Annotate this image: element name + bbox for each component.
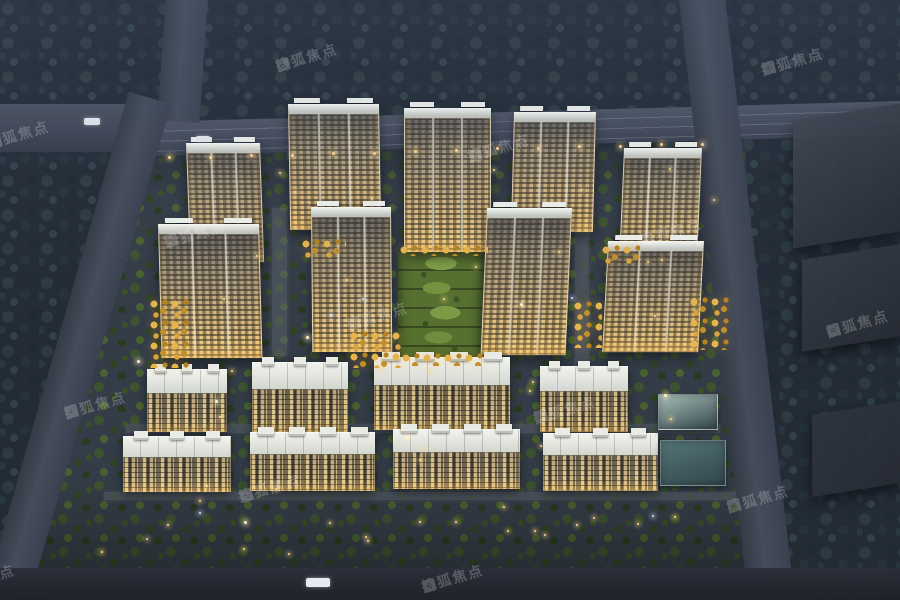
street-lamp-light (137, 360, 140, 363)
tower-facade (404, 118, 491, 252)
street-lamp-light (244, 521, 247, 524)
roof-stair-tower (608, 361, 619, 370)
street-lamp-light (219, 416, 221, 418)
tower-roof-frame (670, 235, 697, 240)
street-lamp-light (294, 191, 296, 193)
lowrise-building (123, 436, 231, 492)
street-lamp-light (578, 145, 581, 148)
street-lamp-light (713, 199, 715, 201)
street-lamp-light (243, 548, 245, 550)
tower-roof (158, 224, 259, 234)
tower-roof-frame (224, 218, 252, 223)
tower-roof-frame (234, 137, 255, 142)
lowrise-facade (393, 452, 520, 489)
street-lamp-light (231, 370, 233, 372)
roof-stair-tower (326, 357, 338, 366)
tower-roof (186, 143, 260, 153)
street-lamp-light (419, 521, 421, 523)
tower-roof-frame (317, 201, 339, 206)
lowrise-facade (123, 457, 231, 492)
roof-stair-tower (208, 364, 218, 373)
street-lamp-light (373, 152, 376, 155)
road-south (0, 568, 900, 600)
office-building-dark (812, 401, 900, 497)
tower-roof-frame (615, 235, 642, 240)
lowrise-building (250, 432, 375, 491)
tower-roof-frame (347, 98, 373, 103)
street-lamp-light (306, 336, 309, 339)
street-lamp-light (619, 145, 622, 148)
roof-stair-tower (206, 431, 220, 440)
lowrise-building (540, 366, 628, 432)
golden-trees (398, 244, 488, 256)
tower-roof-frame (493, 202, 517, 207)
lowrise-facade (147, 393, 227, 432)
office-building-dark (793, 104, 900, 249)
vehicle (196, 136, 210, 142)
golden-trees (348, 330, 402, 368)
roof-stair-tower (593, 428, 608, 437)
lowrise-facade (543, 455, 658, 491)
roof-stair-tower (484, 352, 502, 361)
street-lamp-light (558, 251, 560, 253)
vehicle (306, 578, 330, 587)
tower-facade (481, 218, 572, 355)
tower-roof-frame (520, 106, 543, 111)
street-lamp-light (146, 538, 148, 540)
tower-roof (514, 112, 596, 122)
tower-roof-frame (567, 106, 590, 111)
golden-trees (300, 238, 346, 260)
commercial-building (658, 394, 718, 430)
central-landscape-garden (398, 250, 484, 362)
tower-roof-frame (165, 218, 193, 223)
street-lamp-light (332, 152, 335, 155)
lowrise-building (393, 429, 520, 489)
tower-roof-frame (363, 201, 385, 206)
golden-trees (400, 352, 484, 366)
tower-roof-frame (410, 102, 434, 107)
tower-roof-frame (294, 98, 320, 103)
tower-roof (404, 108, 491, 118)
golden-trees (600, 244, 640, 264)
street-lamp-light (670, 418, 672, 420)
interior-road (104, 492, 740, 500)
commercial-building (660, 440, 726, 486)
lowrise-building (252, 362, 348, 432)
street-lamp-light (206, 485, 208, 487)
street-lamp-light (493, 169, 495, 171)
vehicle (84, 118, 100, 125)
street-lamp-light (529, 390, 531, 392)
golden-trees (688, 296, 732, 350)
roof-stair-tower (258, 427, 274, 436)
street-lamp-light (637, 523, 639, 525)
street-lamp-light (362, 298, 364, 300)
tower-roof-frame (542, 202, 566, 207)
street-lamp-light (701, 143, 704, 146)
roof-stair-tower (549, 361, 560, 370)
golden-trees (148, 298, 190, 368)
tower-roof (487, 208, 572, 218)
tower-roof-frame (675, 142, 697, 147)
roof-stair-tower (631, 428, 646, 437)
roof-stair-tower (134, 431, 148, 440)
street-lamp-light (654, 315, 656, 317)
golden-trees (572, 300, 602, 348)
office-building-dark (802, 244, 900, 352)
roof-stair-tower (401, 424, 418, 433)
residential-tower (481, 208, 572, 355)
tower-roof (311, 207, 391, 217)
roof-stair-tower (496, 424, 513, 433)
tower-roof (624, 148, 702, 158)
street-lamp-light (414, 150, 417, 153)
street-lamp-light (330, 314, 332, 316)
roof-stair-tower (432, 424, 449, 433)
residential-tower (404, 108, 491, 252)
street-lamp-light (199, 500, 201, 502)
roof-stair-tower (262, 357, 274, 366)
roof-stair-tower (320, 427, 336, 436)
tower-roof-frame (629, 142, 651, 147)
street-lamp-light (419, 459, 421, 461)
interior-road (272, 208, 287, 356)
lowrise-facade (250, 454, 375, 491)
street-lamp-light (424, 448, 426, 450)
roof-stair-tower (170, 431, 184, 440)
lowrise-facade (252, 389, 348, 432)
tower-roof-frame (461, 102, 485, 107)
street-lamp-light (660, 143, 663, 146)
roof-stair-tower (578, 361, 589, 370)
roof-stair-tower (289, 427, 305, 436)
street-lamp-light (581, 189, 583, 191)
roof-stair-tower (294, 357, 306, 366)
street-lamp-light (652, 515, 654, 517)
lowrise-facade (540, 391, 628, 432)
aerial-photo: 搜狐焦点搜狐焦点搜狐焦点搜狐焦点搜狐焦点搜狐焦点搜狐焦点搜狐焦点搜狐焦点搜狐焦点… (0, 0, 900, 600)
lowrise-building (543, 433, 658, 491)
roof-stair-tower (351, 427, 367, 436)
roof-stair-tower (464, 424, 481, 433)
roof-stair-tower (555, 428, 570, 437)
street-lamp-light (532, 381, 534, 383)
tower-roof (288, 104, 379, 114)
